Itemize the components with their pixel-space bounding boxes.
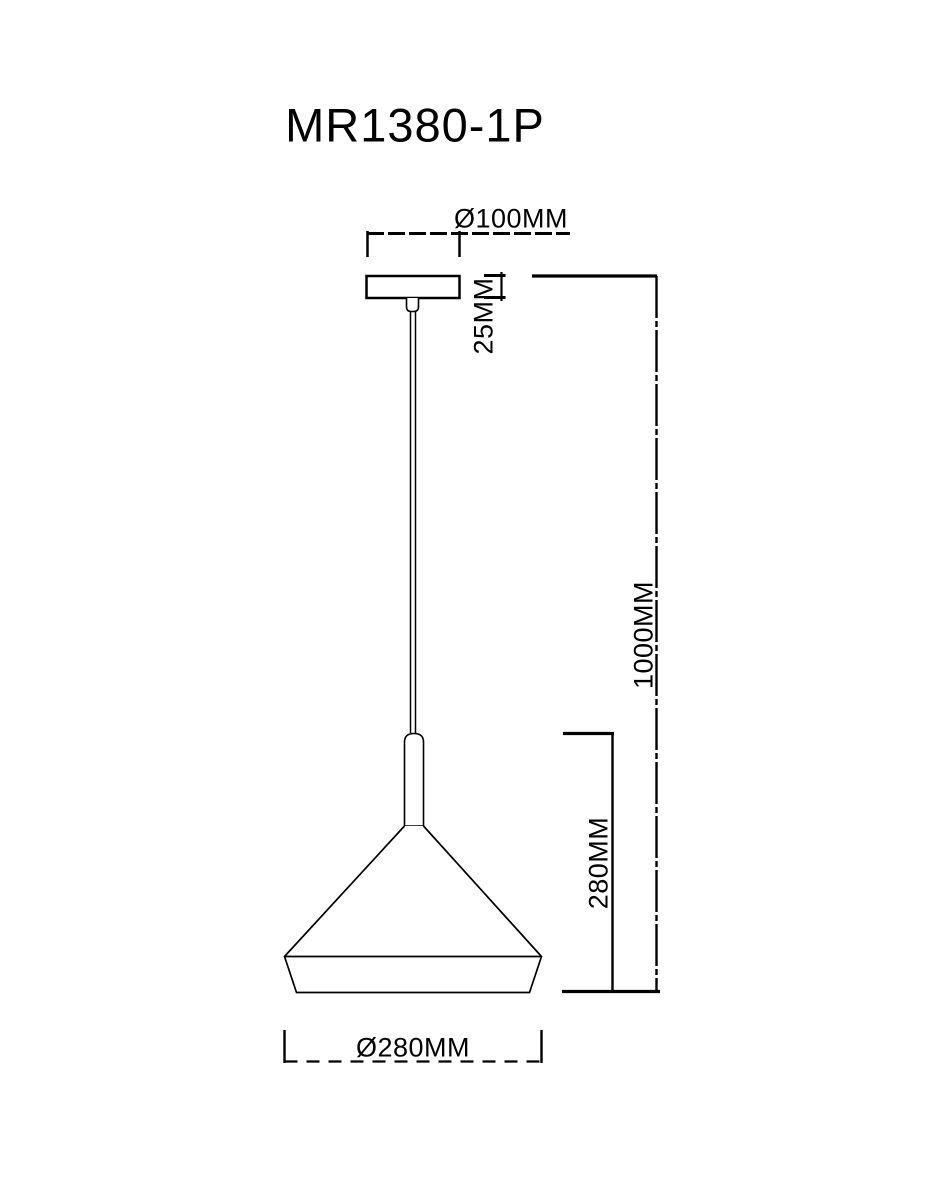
dim-label-overall-height: 1000MM	[631, 581, 658, 689]
technical-drawing	[0, 0, 927, 1200]
dim-label-canopy-diameter: Ø100MM	[454, 206, 568, 233]
canopy-body	[367, 276, 460, 298]
dim-canopy-diameter	[367, 231, 570, 257]
dim-label-canopy-height: 25MM	[471, 277, 498, 354]
stem-body	[405, 734, 424, 827]
ceiling-canopy-outline	[367, 276, 460, 312]
dim-label-shade-diameter: Ø280MM	[356, 1035, 470, 1062]
dim-label-shade-height: 280MM	[586, 817, 613, 910]
lamp-stem-outline	[405, 734, 424, 827]
shade-body	[285, 826, 542, 993]
suspension-cord	[411, 312, 416, 734]
cord-grip	[407, 298, 419, 312]
cone-shade-outline	[285, 826, 542, 993]
drawing-canvas: MR1380-1P	[0, 0, 927, 1200]
